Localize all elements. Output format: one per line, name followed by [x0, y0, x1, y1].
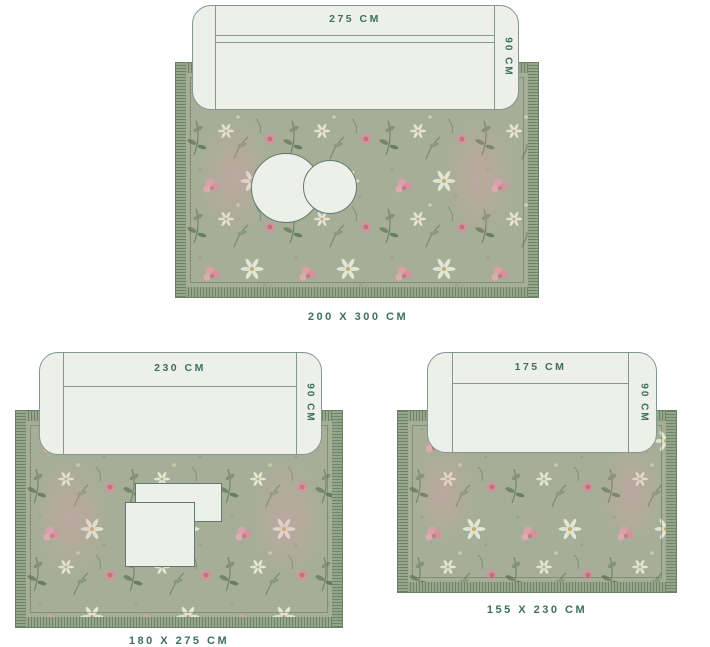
- sofa-top-view: 275 CM 90 CM: [192, 5, 519, 110]
- rug-fringe-bottom: [398, 582, 676, 592]
- rug-size-label: 200 X 300 CM: [248, 311, 468, 323]
- rug-fringe-bottom: [176, 287, 538, 297]
- rug-size-label: 180 X 275 CM: [69, 635, 289, 647]
- rug-fringe-right: [332, 411, 342, 627]
- sofa-dimension-line: [215, 35, 495, 36]
- sofa-depth-dimension-label: 90 CM: [639, 383, 650, 422]
- sofa-depth-dimension-label: 90 CM: [503, 37, 514, 76]
- rug-fringe-left: [16, 411, 26, 627]
- sofa-width-dimension-label: 275 CM: [215, 13, 495, 25]
- rug-fringe-right: [666, 411, 676, 592]
- rug-fringe-bottom: [16, 617, 342, 627]
- sofa-width-dimension-label: 175 CM: [452, 361, 629, 373]
- sofa-width-dimension-label: 230 CM: [63, 362, 297, 374]
- coffee-table-rect-front: [125, 502, 195, 567]
- rug-fringe-left: [398, 411, 408, 592]
- rug-fringe-right: [528, 63, 538, 297]
- rug-size-label: 155 X 230 CM: [427, 604, 647, 616]
- sofa-top-view: 175 CM 90 CM: [427, 352, 657, 453]
- sofa-backrest-line: [63, 386, 297, 387]
- rug-size-guide: 275 CM 90 CM 200 X 300 CM 230 CM: [0, 0, 710, 647]
- sofa-backrest-line: [452, 383, 629, 384]
- sofa-depth-dimension-label: 90 CM: [305, 383, 316, 422]
- rug-fringe-left: [176, 63, 186, 297]
- coffee-table-circle-small: [303, 160, 357, 214]
- sofa-top-view: 230 CM 90 CM: [39, 352, 322, 455]
- sofa-backrest-line: [215, 42, 495, 43]
